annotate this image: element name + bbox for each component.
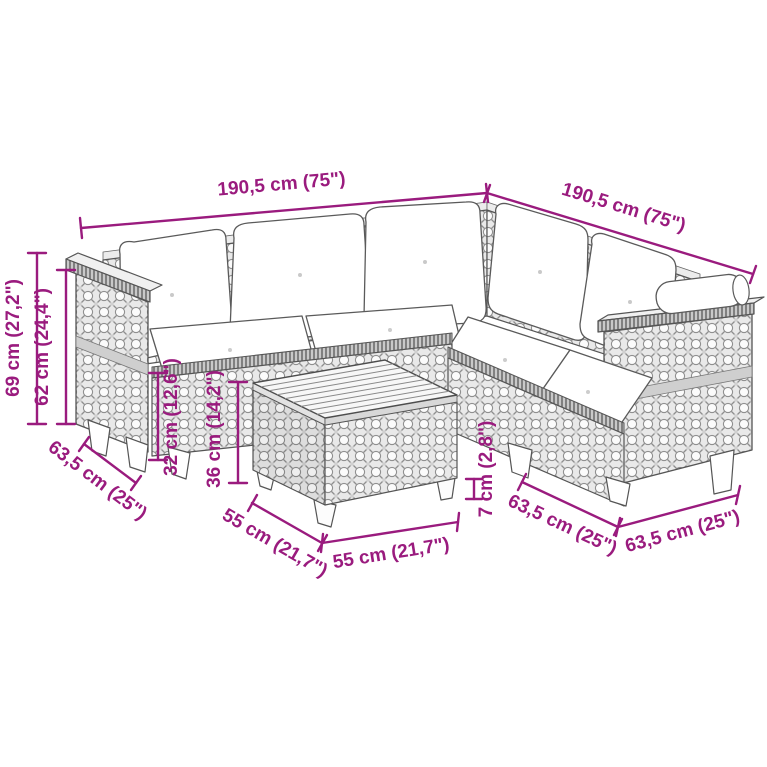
sofa-foot — [710, 450, 734, 494]
diagram-svg: 190,5 cm (75") 190,5 cm (75") 69 cm (27,… — [0, 0, 767, 767]
dimension-label: 32 cm (12,6") — [161, 358, 182, 476]
dimension-label: 36 cm (14,2") — [204, 370, 225, 488]
dimension-label: 69 cm (27,2") — [3, 279, 24, 397]
dimension-label: 190,5 cm (75") — [217, 168, 347, 200]
left-armrest — [66, 253, 162, 472]
coffee-table — [253, 360, 457, 527]
dim-table-width: 55 cm (21,7") — [321, 513, 459, 573]
dimension-label: 62 cm (24,4") — [32, 288, 53, 406]
product-dimension-diagram: 190,5 cm (75") 190,5 cm (75") 69 cm (27,… — [0, 0, 767, 767]
dimension-label: 7 cm (2,8") — [476, 421, 497, 518]
dim-backrest-height: 62 cm (24,4") — [32, 270, 75, 424]
dim-right-side-depth: 63,5 cm (25") — [616, 486, 742, 557]
dimension-label: 63,5 cm (25") — [623, 506, 742, 557]
dim-table-depth: 55 cm (21,7") — [218, 495, 331, 582]
